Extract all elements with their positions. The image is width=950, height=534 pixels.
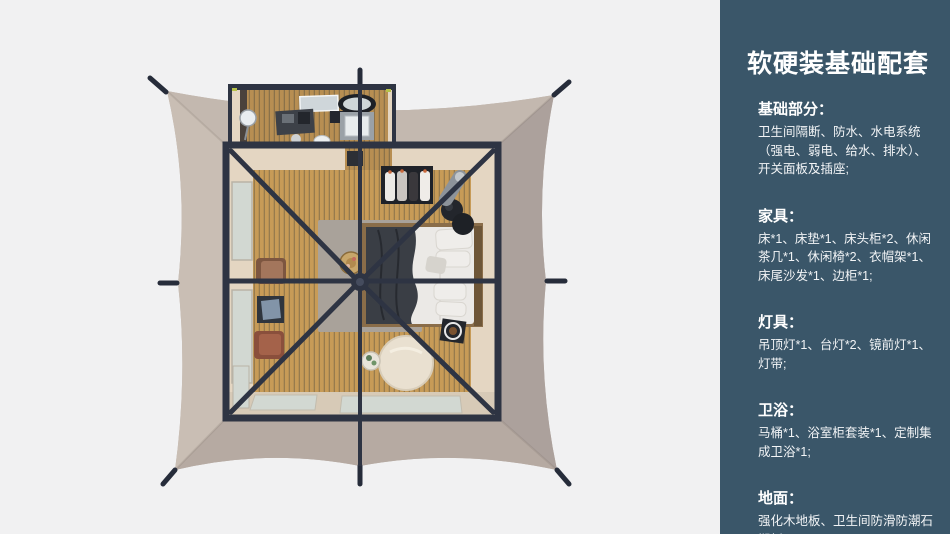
section-lighting: 灯具： 吊顶灯*1、台灯*2、镜前灯*1、灯带;	[758, 311, 934, 373]
section-body: 卫生间隔断、防水、水电系统（强电、弱电、给水、排水）、开关面板及插座;	[758, 123, 934, 179]
info-panel: 软硬装基础配套 基础部分： 卫生间隔断、防水、水电系统（强电、弱电、给水、排水）…	[720, 0, 950, 534]
panel-title: 软硬装基础配套	[742, 44, 934, 80]
armchair-lower	[254, 331, 284, 359]
wall-mirror	[257, 296, 284, 323]
section-body: 床*1、床垫*1、床头柜*2、休闲茶几*1、休闲椅*2、衣帽架*1、床尾沙发*1…	[758, 230, 934, 286]
section-bathroom: 卫浴： 马桶*1、浴室柜套装*1、定制集成卫浴*1;	[758, 399, 934, 461]
section-furniture: 家具： 床*1、床垫*1、床头柜*2、休闲茶几*1、休闲椅*2、衣帽架*1、床尾…	[758, 205, 934, 286]
coat-rack	[381, 166, 433, 204]
section-flooring: 地面： 强化木地板、卫生间防滑防潮石塑板;	[758, 487, 934, 534]
section-heading: 基础部分：	[758, 98, 934, 119]
bathroom-wall-beam	[228, 84, 396, 90]
skylight	[300, 95, 339, 111]
section-heading: 灯具：	[758, 311, 934, 332]
section-heading: 地面：	[758, 487, 934, 508]
left-window-upper	[232, 182, 252, 260]
bathroom-annex	[228, 84, 396, 148]
section-heading: 家具：	[758, 205, 934, 226]
tent-floor-plan-illustration	[0, 0, 720, 534]
section-body: 吊顶灯*1、台灯*2、镜前灯*1、灯带;	[758, 336, 934, 373]
tent-plan-svg	[0, 0, 720, 534]
bed	[362, 223, 483, 327]
throw-blanket	[366, 227, 418, 324]
section-body: 强化木地板、卫生间防滑防潮石塑板;	[758, 512, 934, 534]
headboard	[474, 226, 482, 326]
section-basics: 基础部分： 卫生间隔断、防水、水电系统（强电、弱电、给水、排水）、开关面板及插座…	[758, 98, 934, 179]
tea-table-with-plant	[362, 352, 380, 370]
section-body: 马桶*1、浴室柜套装*1、定制集成卫浴*1;	[758, 424, 934, 461]
section-heading: 卫浴：	[758, 399, 934, 420]
porch-glass-mid	[250, 395, 317, 410]
end-of-bed-table	[440, 318, 467, 343]
